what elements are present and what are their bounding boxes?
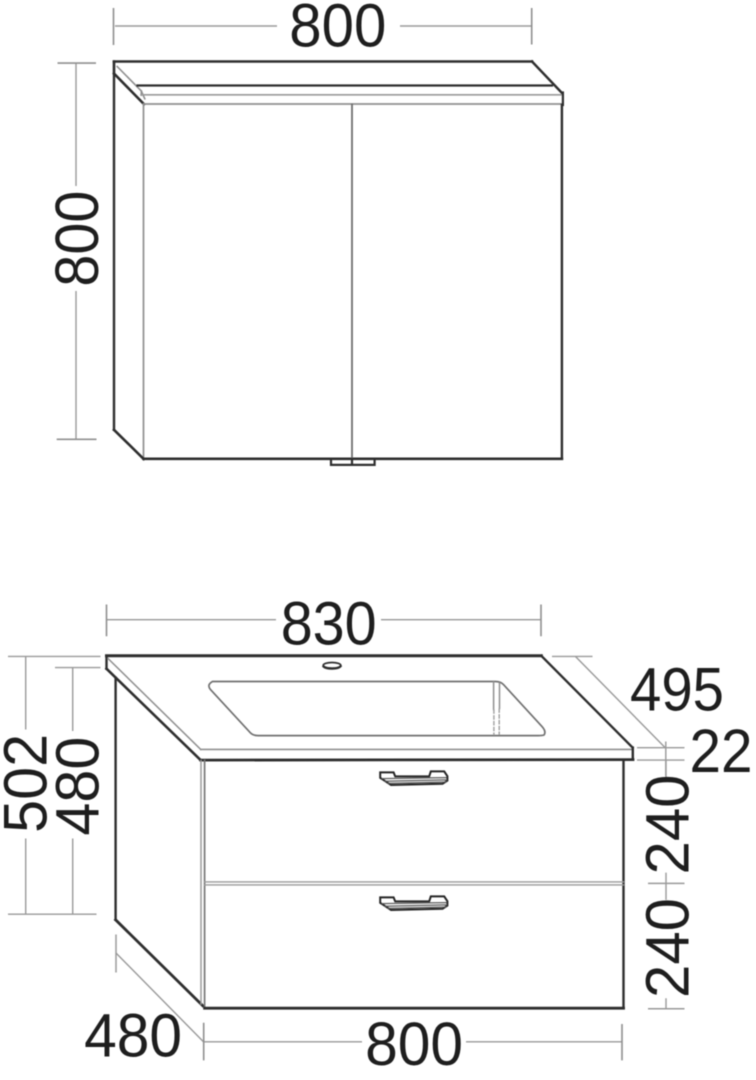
svg-text:240: 240 [634, 898, 702, 998]
svg-text:830: 830 [281, 589, 377, 657]
svg-text:240: 240 [634, 775, 702, 875]
svg-text:495: 495 [630, 656, 724, 724]
svg-text:800: 800 [43, 191, 111, 287]
svg-text:480: 480 [43, 737, 111, 836]
svg-text:480: 480 [84, 1001, 182, 1069]
svg-text:800: 800 [365, 1010, 463, 1078]
svg-text:800: 800 [289, 0, 386, 60]
